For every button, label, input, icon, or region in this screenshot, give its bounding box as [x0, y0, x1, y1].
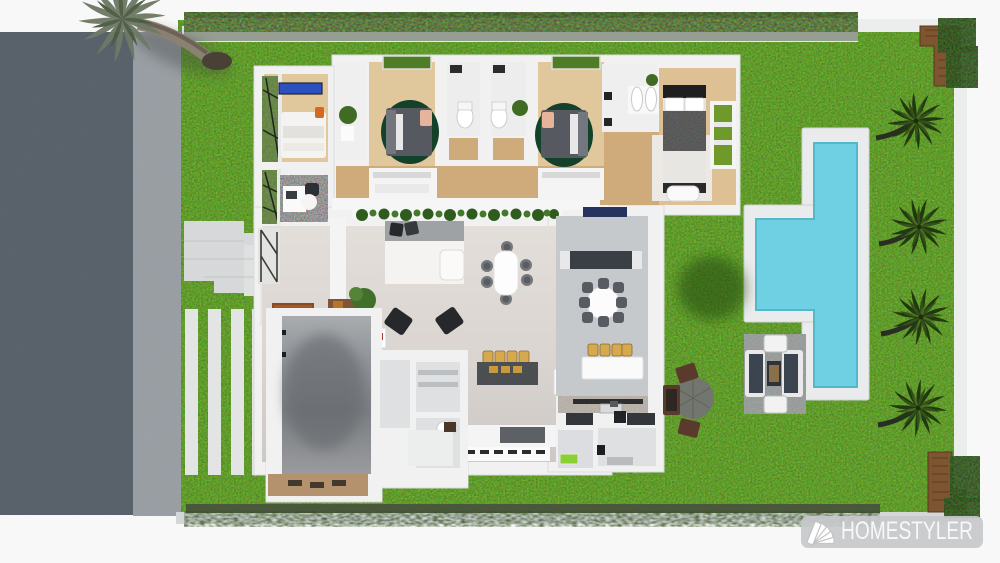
svg-text:HOMESTYLER: HOMESTYLER — [841, 517, 973, 545]
